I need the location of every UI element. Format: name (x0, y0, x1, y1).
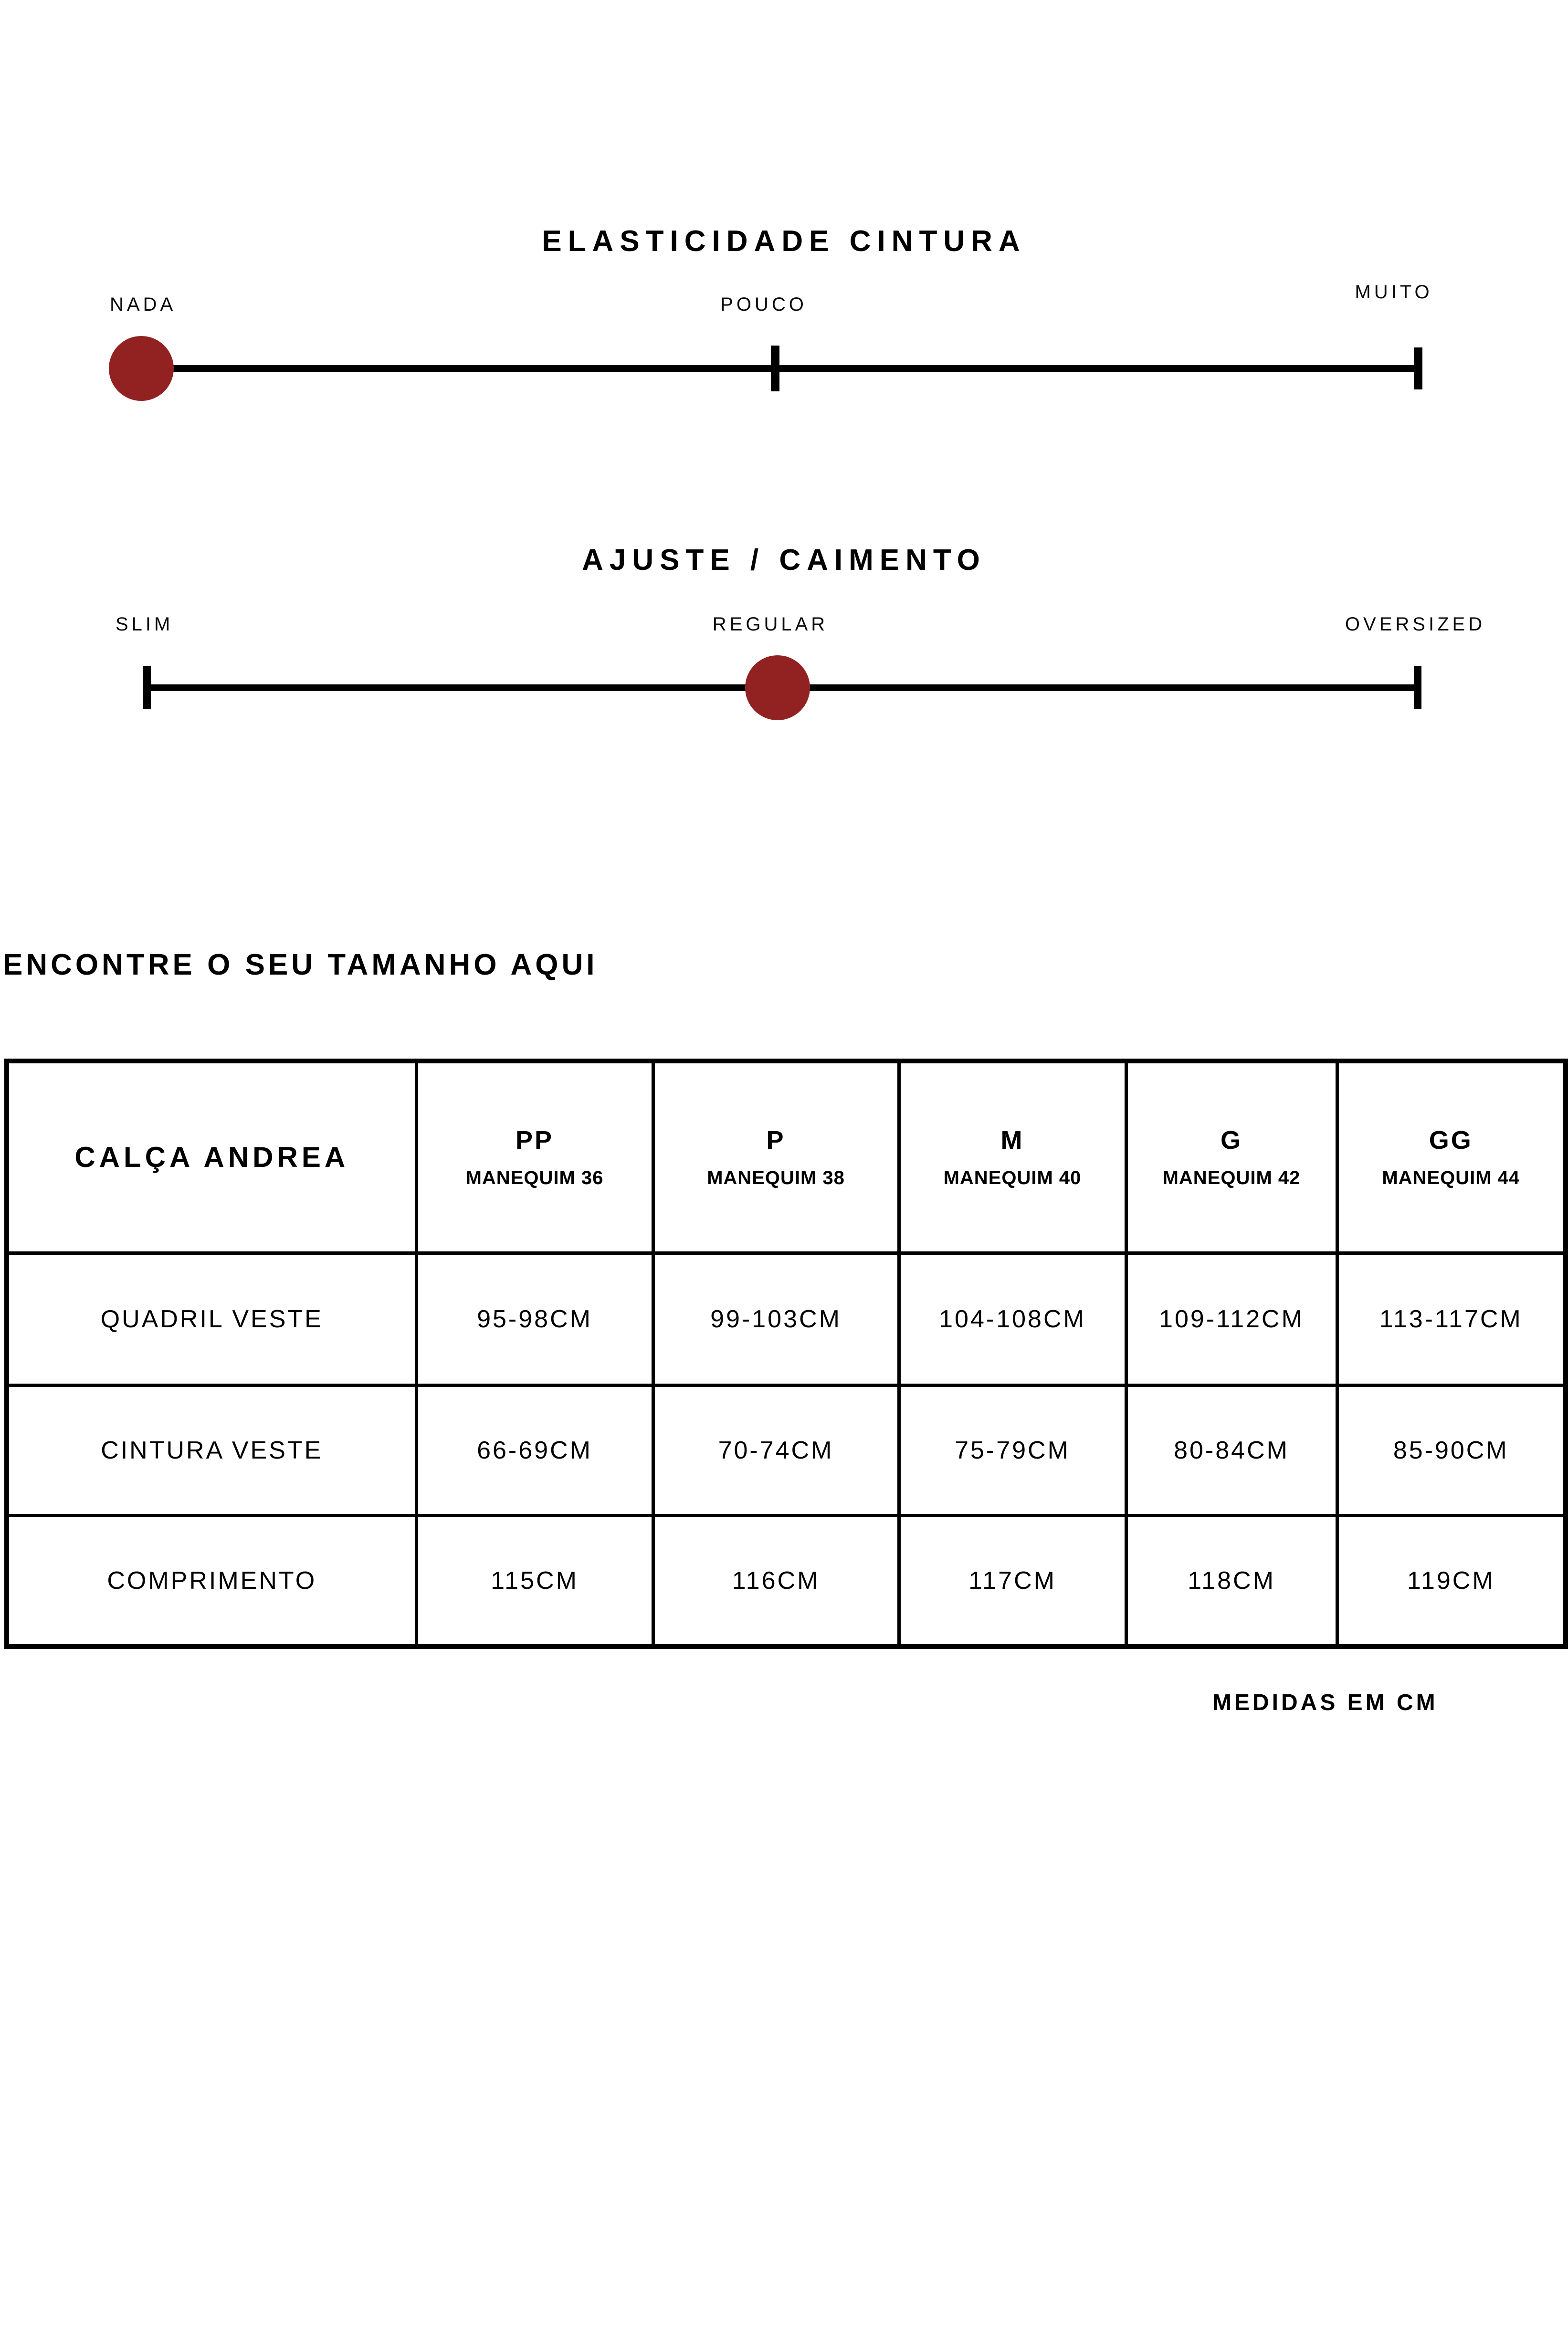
size-code: P (655, 1125, 897, 1155)
size-column-p: P MANEQUIM 38 (653, 1061, 899, 1253)
size-finder-heading: ENCONTRE O SEU TAMANHO AQUI (3, 948, 598, 982)
measurement-cell: 113-117CM (1337, 1253, 1566, 1385)
measurement-cell: 117CM (899, 1515, 1126, 1647)
fit-label-slim: SLIM (116, 614, 173, 635)
measurement-cell: 95-98CM (416, 1253, 653, 1385)
measurement-cell: 75-79CM (899, 1385, 1126, 1515)
measurement-cell: 104-108CM (899, 1253, 1126, 1385)
size-code: PP (418, 1125, 652, 1155)
fit-handle-dot (745, 655, 810, 720)
size-mannequin: MANEQUIM 40 (901, 1167, 1125, 1189)
size-mannequin: MANEQUIM 42 (1128, 1167, 1336, 1189)
size-mannequin: MANEQUIM 38 (655, 1167, 897, 1189)
measurement-cell: 119CM (1337, 1515, 1566, 1647)
measurement-cell: 116CM (653, 1515, 899, 1647)
measurement-cell: 99-103CM (653, 1253, 899, 1385)
size-guide-infographic: ELASTICIDADE CINTURA NADA POUCO MUITO AJ… (0, 0, 1568, 2352)
size-code: M (901, 1125, 1125, 1155)
row-label: CINTURA VESTE (7, 1385, 416, 1515)
waist-elasticity-title: ELASTICIDADE CINTURA (0, 224, 1568, 258)
measurement-cell: 85-90CM (1337, 1385, 1566, 1515)
size-column-pp: PP MANEQUIM 36 (416, 1061, 653, 1253)
size-column-g: G MANEQUIM 42 (1126, 1061, 1337, 1253)
waist-elasticity-label-pouco: POUCO (720, 294, 807, 315)
size-column-m: M MANEQUIM 40 (899, 1061, 1126, 1253)
waist-elasticity-label-muito: MUITO (1355, 282, 1432, 303)
fit-left-end-tick (143, 666, 151, 709)
measurement-cell: 109-112CM (1126, 1253, 1337, 1385)
product-name-cell: CALÇA ANDREA (7, 1061, 416, 1253)
measurement-cell: 80-84CM (1126, 1385, 1337, 1515)
size-column-gg: GG MANEQUIM 44 (1337, 1061, 1566, 1253)
row-label: QUADRIL VESTE (7, 1253, 416, 1385)
table-row-comprimento: COMPRIMENTO 115CM 116CM 117CM 118CM 119C… (7, 1515, 1566, 1647)
size-table: CALÇA ANDREA PP MANEQUIM 36 P MANEQUIM 3… (4, 1059, 1568, 1649)
measurement-cell: 118CM (1126, 1515, 1337, 1647)
fit-title: AJUSTE / CAIMENTO (0, 543, 1568, 577)
table-row-quadril: QUADRIL VESTE 95-98CM 99-103CM 104-108CM… (7, 1253, 1566, 1385)
waist-elasticity-right-end-tick (1414, 347, 1422, 389)
table-header-row: CALÇA ANDREA PP MANEQUIM 36 P MANEQUIM 3… (7, 1061, 1566, 1253)
table-row-cintura: CINTURA VESTE 66-69CM 70-74CM 75-79CM 80… (7, 1385, 1566, 1515)
row-label: COMPRIMENTO (7, 1515, 416, 1647)
fit-label-oversized: OVERSIZED (1345, 614, 1485, 635)
measurements-unit-note: MEDIDAS EM CM (1212, 1690, 1438, 1716)
fit-label-regular: REGULAR (713, 614, 828, 635)
waist-elasticity-handle-dot (109, 336, 174, 401)
waist-elasticity-track (143, 365, 1421, 372)
size-mannequin: MANEQUIM 44 (1339, 1167, 1564, 1189)
measurement-cell: 115CM (416, 1515, 653, 1647)
fit-right-end-tick (1414, 666, 1421, 709)
waist-elasticity-label-nada: NADA (110, 294, 176, 315)
size-code: G (1128, 1125, 1336, 1155)
waist-elasticity-center-tick (771, 346, 779, 391)
measurement-cell: 70-74CM (653, 1385, 899, 1515)
size-code: GG (1339, 1125, 1564, 1155)
size-mannequin: MANEQUIM 36 (418, 1167, 652, 1189)
measurement-cell: 66-69CM (416, 1385, 653, 1515)
